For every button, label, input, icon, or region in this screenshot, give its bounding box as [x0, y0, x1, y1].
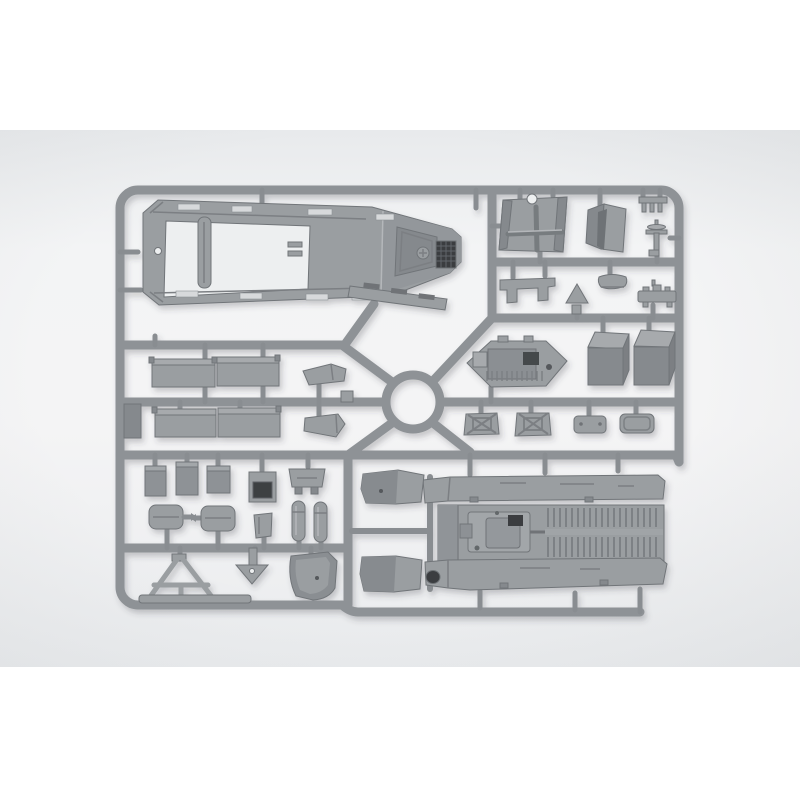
- engine-grille: [436, 241, 456, 268]
- product-photo: [0, 0, 800, 800]
- side-skirt-upper: [423, 475, 665, 503]
- side-skirt-lower: [425, 558, 667, 590]
- triangle-part: [566, 284, 588, 314]
- diagonal-to-strip: [346, 304, 374, 343]
- cushion-parts: [149, 501, 327, 542]
- stowage-box-parts: [145, 462, 325, 502]
- funnel-part: [236, 548, 268, 584]
- hatch-parts: [464, 413, 654, 436]
- fuel-tank-parts: [588, 330, 675, 385]
- fork-bracket-part: [639, 197, 667, 212]
- roof-slot: [240, 293, 262, 299]
- roof-slot: [306, 294, 328, 300]
- hull-hole: [155, 248, 162, 255]
- shield-notch: [527, 194, 537, 204]
- rail-strip-part: [124, 404, 141, 438]
- folded-shield-part: [586, 204, 626, 252]
- fender-wedge-lower: [360, 556, 422, 592]
- interior-clip: [288, 242, 302, 247]
- interior-clip: [288, 251, 302, 256]
- fender-bucket-part: [290, 552, 337, 600]
- center-ring: [386, 375, 440, 429]
- hull-interior-opening: [164, 221, 310, 297]
- sprue: [120, 190, 679, 612]
- antenna-frame-part: [139, 554, 251, 603]
- fender-wedge-upper: [361, 470, 424, 504]
- roof-slot: [376, 214, 394, 220]
- pedestal-part: [646, 220, 667, 256]
- seat-pan-part: [598, 275, 626, 289]
- hull-floor-part: [438, 505, 664, 561]
- sw-spoke: [348, 423, 392, 455]
- roof-slot: [178, 204, 200, 210]
- roof-slot: [308, 209, 332, 215]
- bottom-right-rail: [342, 605, 640, 612]
- engine-block-part: [467, 336, 567, 387]
- stud-bar-part: [638, 280, 676, 307]
- arch-seat-part: [500, 278, 555, 303]
- hull-roof-part: [143, 200, 461, 305]
- h-rail-lower: [120, 455, 679, 462]
- sprue-illustration: [0, 0, 800, 800]
- gun-shield-part: [499, 194, 567, 252]
- roof-slot: [176, 291, 198, 297]
- roof-slot: [232, 206, 252, 212]
